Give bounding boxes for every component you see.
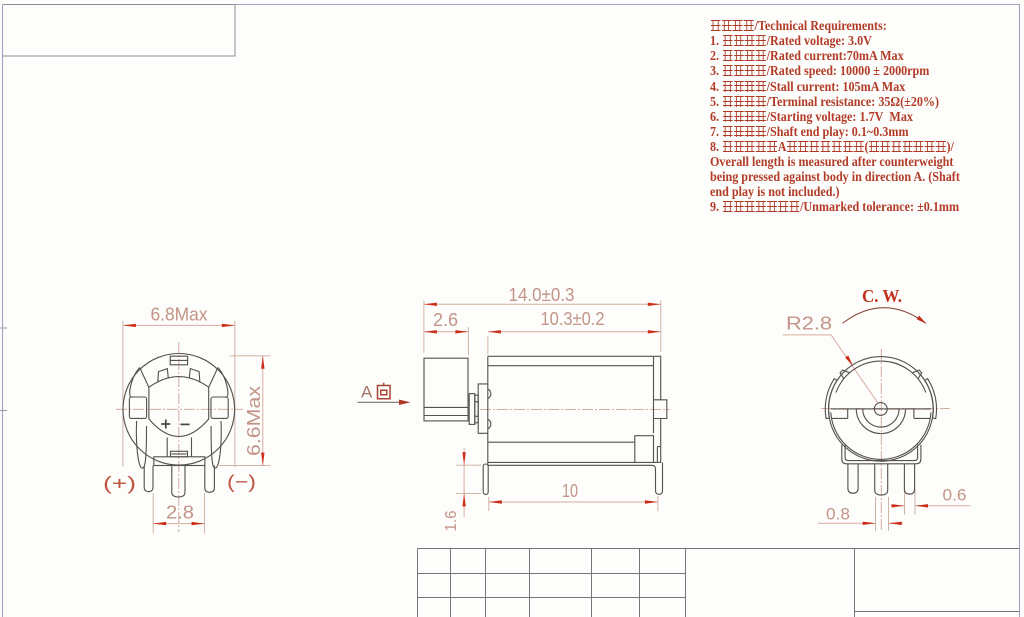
svg-text:2.8: 2.8: [166, 503, 194, 523]
svg-text:0.6: 0.6: [943, 486, 967, 505]
svg-text:(−): (−): [227, 471, 256, 492]
svg-text:2.6: 2.6: [433, 310, 458, 330]
svg-text:A: A: [361, 383, 373, 402]
svg-text:10: 10: [562, 481, 578, 501]
svg-text:C. W.: C. W.: [862, 286, 902, 306]
svg-text:6.8Max: 6.8Max: [151, 305, 208, 325]
svg-text:1.6: 1.6: [443, 511, 460, 532]
svg-text:(+): (+): [103, 473, 136, 494]
svg-text:10.3±0.2: 10.3±0.2: [541, 309, 605, 329]
svg-text:6.6Max: 6.6Max: [244, 386, 264, 456]
svg-text:14.0±0.3: 14.0±0.3: [509, 285, 575, 305]
svg-text:0.8: 0.8: [826, 505, 850, 524]
svg-text:R2.8: R2.8: [786, 314, 832, 334]
